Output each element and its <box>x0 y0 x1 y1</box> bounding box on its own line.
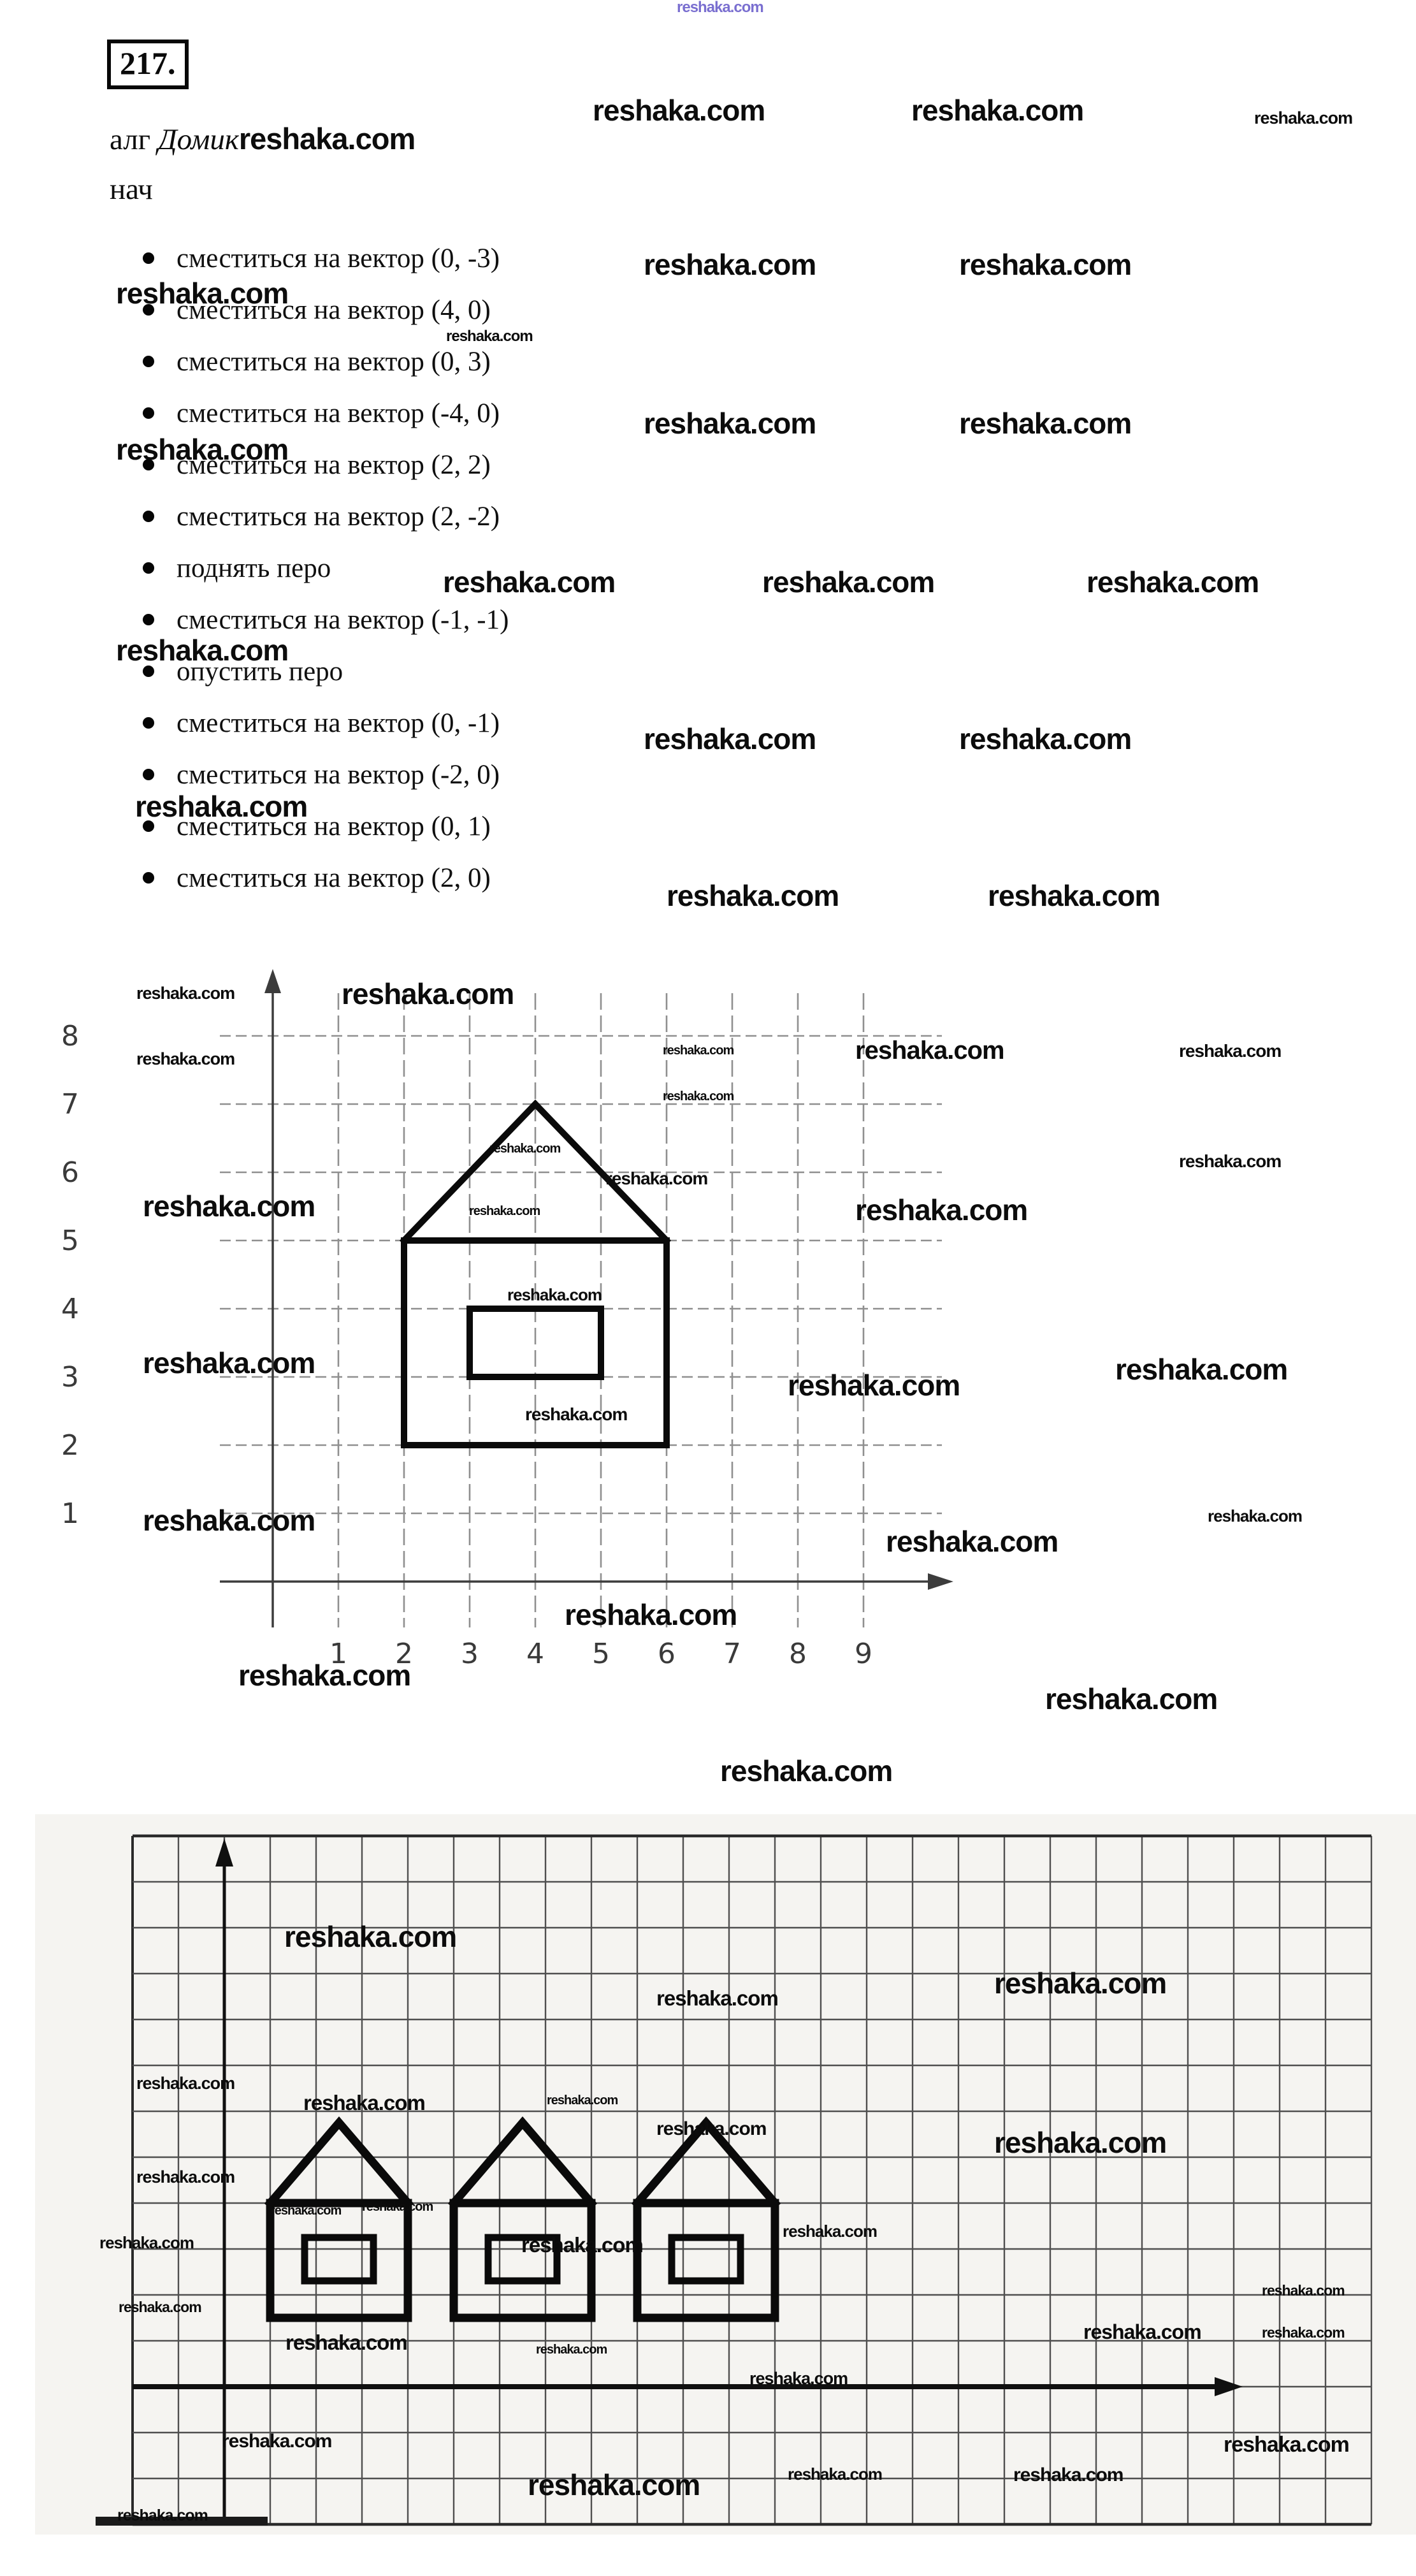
bullet-icon <box>143 717 154 729</box>
watermark: reshaka.com <box>644 250 816 279</box>
watermark: reshaka.com <box>593 96 765 125</box>
watermark: reshaka.com <box>1013 2466 1123 2485</box>
watermark: reshaka.com <box>222 2432 331 2451</box>
bullet-icon <box>143 356 154 367</box>
watermark: reshaka.com <box>656 1988 778 2009</box>
watermark: reshaka.com <box>959 250 1131 279</box>
watermark: reshaka.com <box>136 985 235 1002</box>
watermark: reshaka.com <box>783 2223 877 2239</box>
tick-label: 5 <box>61 1225 79 1257</box>
watermark: reshaka.com <box>362 2201 433 2213</box>
tick-label: 3 <box>461 1638 479 1670</box>
bullet-icon <box>143 666 154 677</box>
watermark: reshaka.com <box>116 636 288 665</box>
command-item: сместиться на вектор (-1, -1) <box>143 606 509 633</box>
watermark: reshaka.com <box>644 409 816 438</box>
tick-label: 3 <box>61 1361 79 1394</box>
watermark: reshaka.com <box>116 435 288 464</box>
watermark: reshaka.com <box>720 1756 892 1786</box>
tick-label: 4 <box>526 1638 544 1670</box>
bullet-icon <box>143 252 154 264</box>
watermark: reshaka.com <box>855 1038 1004 1063</box>
watermark: reshaka.com <box>788 2466 882 2482</box>
command-item: сместиться на вектор (2, -2) <box>143 503 509 530</box>
watermark: reshaka.com <box>1208 1508 1302 1524</box>
watermark: reshaka.com <box>135 792 307 821</box>
watermark: reshaka.com <box>136 2075 235 2092</box>
watermark: reshaka.com <box>136 1051 235 1068</box>
watermark: reshaka.com <box>521 2234 643 2255</box>
task-number: 217. <box>120 45 176 81</box>
tick-label: 7 <box>723 1638 741 1670</box>
page: 12345678123456789 217. алг Домикreshaka.… <box>0 0 1416 2576</box>
tick-label: 2 <box>61 1429 79 1462</box>
tick-label: 4 <box>61 1293 79 1325</box>
watermark: reshaka.com <box>303 2092 425 2113</box>
watermark: reshaka.com <box>667 881 839 910</box>
watermark: reshaka.com <box>1262 2283 1345 2298</box>
watermark: reshaka.com <box>143 1191 315 1221</box>
plot2-background <box>35 1814 1416 2535</box>
bullet-icon <box>143 511 154 522</box>
tick-label: 5 <box>592 1638 610 1670</box>
watermark: reshaka.com <box>1045 1684 1217 1714</box>
watermark: reshaka.com <box>536 2343 607 2356</box>
watermark: reshaka.com <box>605 1170 707 1188</box>
command-item: сместиться на вектор (-2, 0) <box>143 761 509 788</box>
tick-label: 8 <box>789 1638 807 1670</box>
bullet-icon <box>143 872 154 884</box>
alg-keyword: алг <box>110 123 158 156</box>
watermark: reshaka.com <box>469 1205 540 1218</box>
watermark: reshaka.com <box>677 0 763 15</box>
watermark: reshaka.com <box>1179 1042 1281 1060</box>
command-item: сместиться на вектор (0, -3) <box>143 245 509 272</box>
algorithm-name: Домик <box>158 123 239 156</box>
watermark: reshaka.com <box>644 724 816 753</box>
watermark: reshaka.com <box>342 979 514 1008</box>
watermark: reshaka.com <box>1115 1355 1287 1384</box>
bullet-icon <box>143 562 154 574</box>
watermark: reshaka.com <box>1224 2434 1349 2456</box>
tick-label: 8 <box>61 1020 79 1052</box>
bullet-icon <box>143 407 154 419</box>
tick-label: 1 <box>61 1497 79 1530</box>
watermark: reshaka.com <box>143 1348 315 1378</box>
command-text: сместиться на вектор (2, -2) <box>177 501 500 532</box>
watermark: reshaka.com <box>1179 1153 1281 1170</box>
command-text: сместиться на вектор (0, 3) <box>177 346 491 377</box>
task-number-box: 217. <box>107 40 189 89</box>
command-text: поднять перо <box>177 553 331 584</box>
watermark: reshaka.com <box>855 1195 1027 1225</box>
watermark: reshaka.com <box>959 409 1131 438</box>
watermark: reshaka.com <box>1087 567 1259 597</box>
watermark: reshaka.com <box>143 1506 315 1535</box>
command-text: сместиться на вектор (0, -1) <box>177 708 500 739</box>
watermark: reshaka.com <box>663 1044 733 1057</box>
command-text: сместиться на вектор (-1, -1) <box>177 604 509 636</box>
watermark: reshaka.com <box>119 2300 201 2315</box>
watermark: reshaka.com <box>116 279 288 308</box>
command-text: сместиться на вектор (-4, 0) <box>177 398 500 429</box>
watermark: reshaka.com <box>117 2508 208 2524</box>
command-text: сместиться на вектор (2, 0) <box>177 862 491 894</box>
algorithm-header-line: алг Домикreshaka.com <box>110 121 415 157</box>
watermark: reshaka.com <box>1254 110 1352 127</box>
watermark: reshaka.com <box>547 2094 618 2107</box>
command-item: сместиться на вектор (0, -1) <box>143 709 509 736</box>
command-text: сместиться на вектор (-2, 0) <box>177 759 500 790</box>
watermark: reshaka.com <box>489 1142 560 1155</box>
watermark: reshaka.com <box>911 96 1083 125</box>
command-item: сместиться на вектор (0, 3) <box>143 348 509 375</box>
watermark: reshaka.com <box>663 1090 733 1103</box>
watermark: reshaka.com <box>1262 2325 1345 2340</box>
watermark: reshaka.com <box>443 567 615 597</box>
watermark: reshaka.com <box>994 1968 1166 1998</box>
command-item: сместиться на вектор (2, 0) <box>143 864 509 891</box>
watermark: reshaka.com <box>565 1600 737 1629</box>
watermark: reshaka.com <box>284 1922 456 1951</box>
begin-keyword: нач <box>110 172 153 207</box>
tick-label: 9 <box>855 1638 872 1670</box>
tick-label: 6 <box>658 1638 675 1670</box>
watermark: reshaka.com <box>507 1286 602 1303</box>
watermark: reshaka.com <box>988 881 1160 910</box>
command-text: сместиться на вектор (0, -3) <box>177 243 500 274</box>
watermark: reshaka.com <box>239 122 415 156</box>
watermark: reshaka.com <box>528 2470 700 2500</box>
bullet-icon <box>143 614 154 625</box>
watermark: reshaka.com <box>788 1371 960 1400</box>
watermark: reshaka.com <box>762 567 934 597</box>
watermark: reshaka.com <box>270 2204 341 2217</box>
watermark: reshaka.com <box>886 1527 1058 1556</box>
watermark: reshaka.com <box>959 724 1131 753</box>
watermark: reshaka.com <box>749 2370 848 2387</box>
watermark: reshaka.com <box>994 2128 1166 2157</box>
watermark: reshaka.com <box>238 1661 410 1690</box>
tick-label: 7 <box>61 1088 79 1121</box>
command-item: сместиться на вектор (-4, 0) <box>143 400 509 426</box>
watermark: reshaka.com <box>656 2120 766 2139</box>
watermark: reshaka.com <box>525 1406 627 1423</box>
bullet-icon <box>143 769 154 780</box>
watermark: reshaka.com <box>99 2234 194 2251</box>
watermark: reshaka.com <box>446 329 533 344</box>
tick-label: 6 <box>61 1156 79 1189</box>
watermark: reshaka.com <box>136 2169 235 2186</box>
watermark: reshaka.com <box>1083 2322 1201 2342</box>
watermark: reshaka.com <box>285 2332 407 2353</box>
